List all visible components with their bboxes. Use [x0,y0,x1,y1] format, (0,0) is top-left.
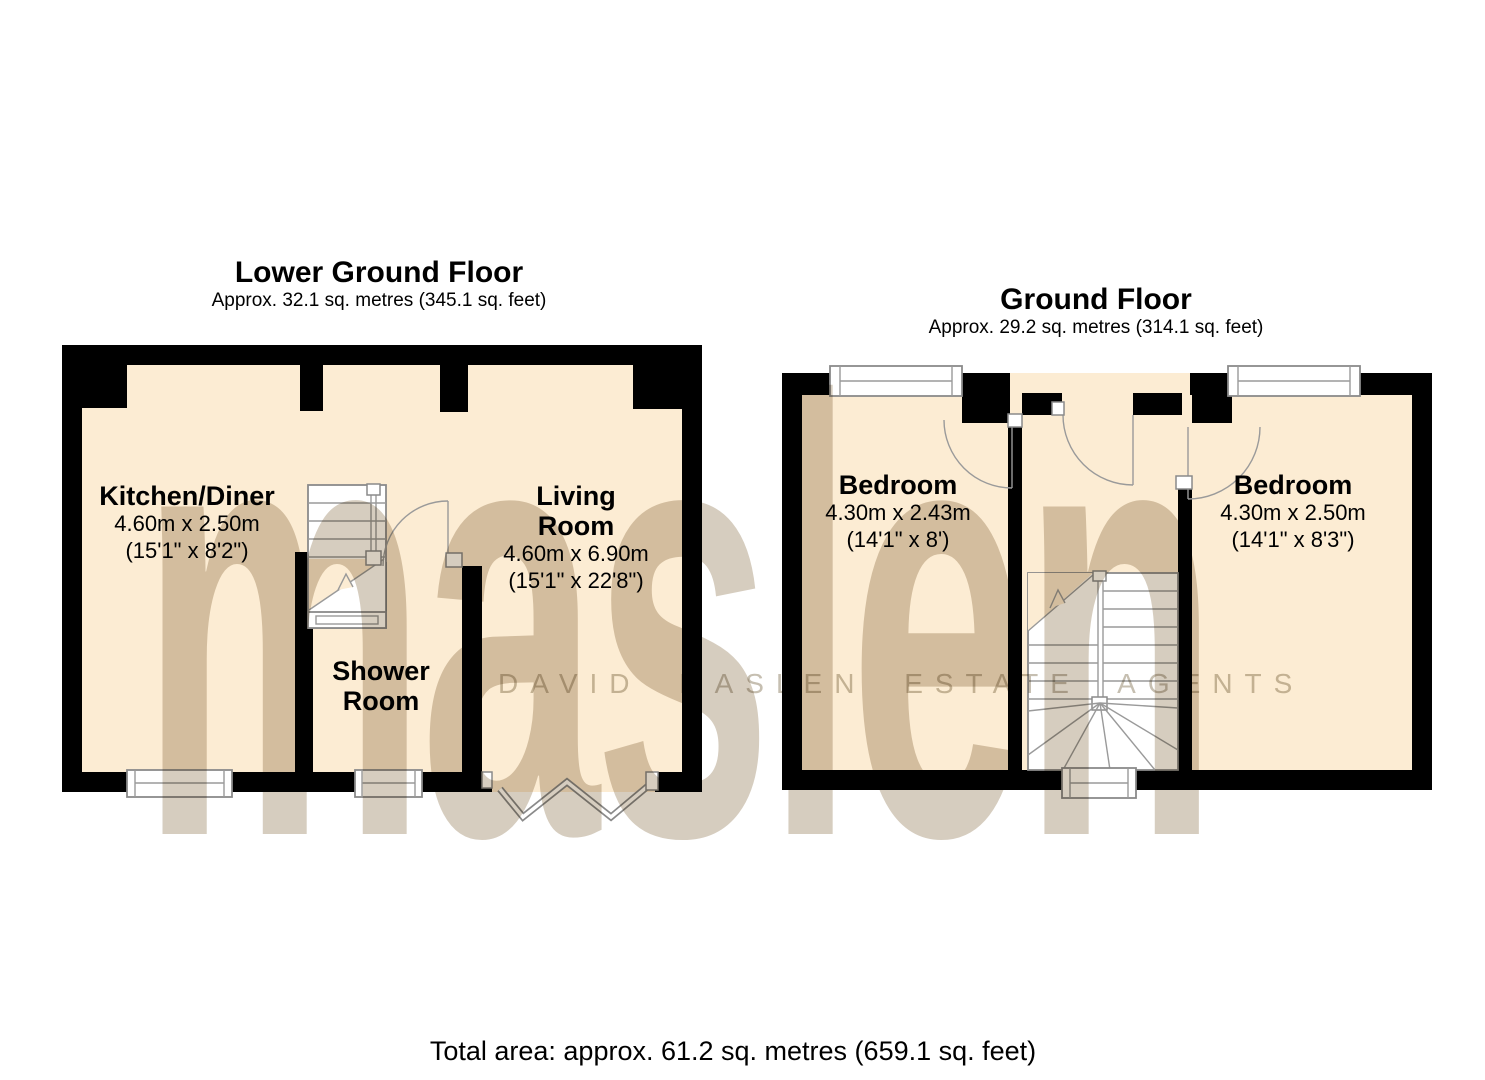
living-room-label: Living Room 4.60m x 6.90m (15'1" x 22'8"… [503,481,649,594]
room-name-text: Bedroom [825,470,971,500]
kitchen-window-icon [127,770,232,797]
room-dim-imperial: (15'1" x 8'2") [99,538,275,564]
ground-floor-plan [782,366,1432,798]
shower-window-icon [355,770,422,797]
floor-title-text: Lower Ground Floor [212,256,547,290]
bedroom-left-window-icon [830,366,962,396]
hall-window-icon [1062,768,1136,798]
room-dim-metric: 4.60m x 2.50m [99,511,275,537]
door-jamb [1176,476,1192,489]
room-dim-metric: 4.30m x 2.50m [1220,500,1366,526]
room-dim-imperial: (14'1" x 8'3") [1220,527,1366,553]
bedroom-left-label: Bedroom 4.30m x 2.43m (14'1" x 8') [825,470,971,553]
lower-staircase [308,484,386,628]
door-jamb [1008,414,1022,427]
room-name-text: Bedroom [1220,470,1366,500]
door-jamb [482,772,492,788]
ground-staircase [1028,571,1178,770]
ground-floor-title: Ground Floor Approx. 29.2 sq. metres (31… [929,283,1264,339]
room-dim-metric: 4.60m x 6.90m [503,541,649,567]
room-dim-metric: 4.30m x 2.43m [825,500,971,526]
door-jamb [646,772,658,790]
room-name-text: Shower Room [311,656,451,716]
room-name-text: Living Room [506,481,646,541]
total-area-text: Total area: approx. 61.2 sq. metres (659… [430,1036,1036,1067]
kitchen-diner-label: Kitchen/Diner 4.60m x 2.50m (15'1" x 8'2… [99,481,275,564]
floor-title-text: Ground Floor [929,283,1264,317]
room-name-text: Kitchen/Diner [99,481,275,511]
room-dim-imperial: (15'1" x 22'8") [503,568,649,594]
shower-room-label: Shower Room [311,656,451,716]
room-dim-imperial: (14'1" x 8') [825,527,971,553]
floorplan-page: maslen DAVID MASLEN ESTATE AGENTS Lower … [0,0,1485,1080]
door-jamb [1052,402,1064,415]
bedroom-right-window-icon [1228,366,1360,396]
floor-subtitle-text: Approx. 32.1 sq. metres (345.1 sq. feet) [212,290,547,312]
lower-floor-title: Lower Ground Floor Approx. 32.1 sq. metr… [212,256,547,312]
bedroom-right-label: Bedroom 4.30m x 2.50m (14'1" x 8'3") [1220,470,1366,553]
floor-subtitle-text: Approx. 29.2 sq. metres (314.1 sq. feet) [929,317,1264,339]
